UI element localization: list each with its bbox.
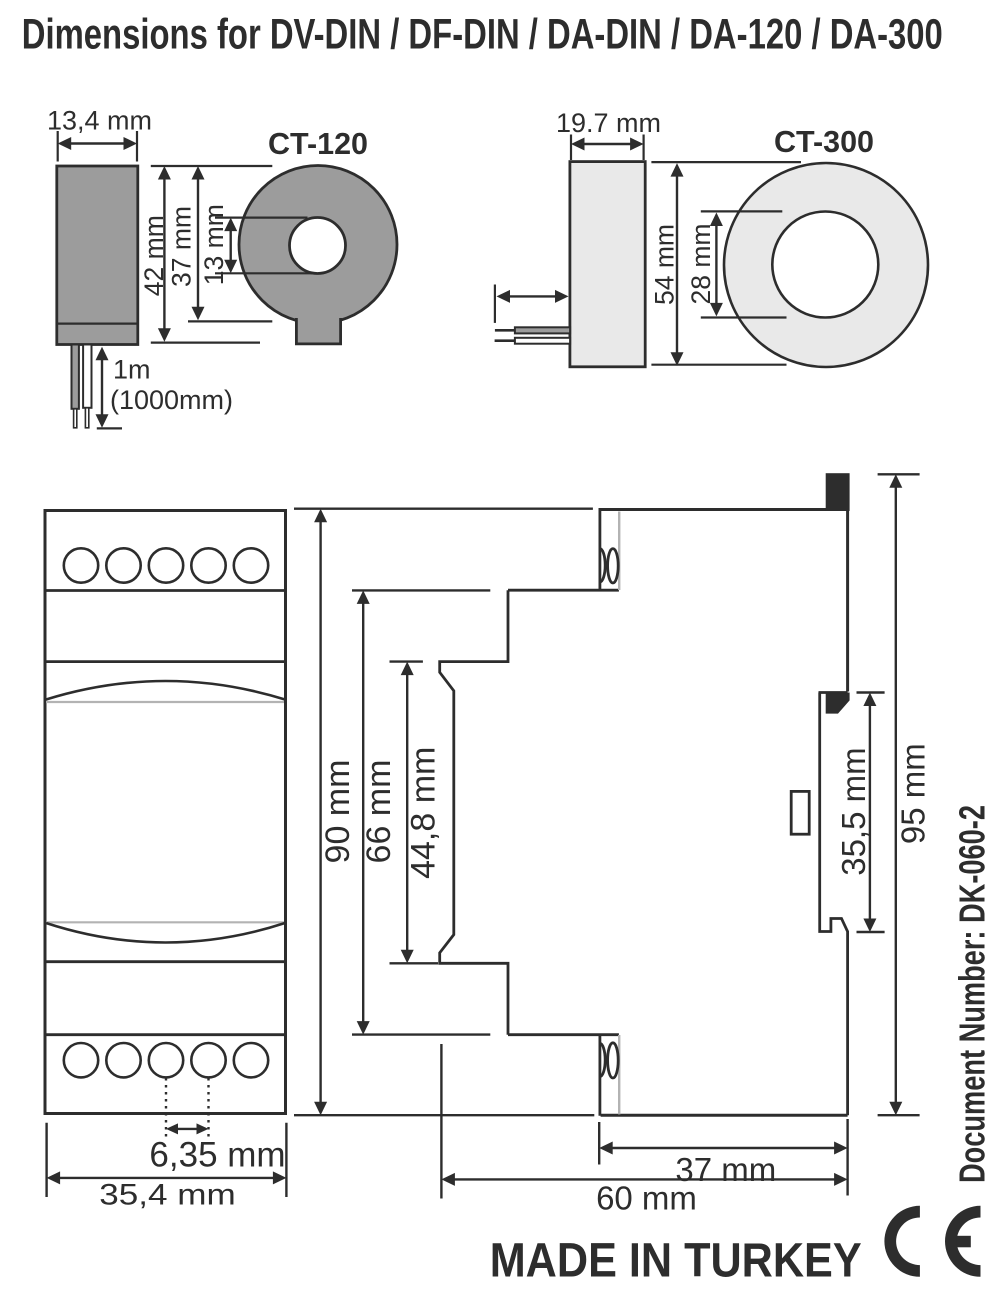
svg-text:CT-300: CT-300: [774, 125, 874, 159]
svg-text:Dimensions for DV-DIN / DF-DIN: Dimensions for DV-DIN / DF-DIN / DA-DIN …: [22, 11, 943, 59]
svg-text:35,4 mm: 35,4 mm: [99, 1177, 235, 1211]
svg-text:28 mm: 28 mm: [686, 224, 716, 305]
svg-text:54 mm: 54 mm: [650, 224, 680, 305]
svg-text:19.7 mm: 19.7 mm: [556, 108, 661, 138]
svg-text:(1000mm): (1000mm): [110, 385, 233, 415]
svg-text:MADE IN TURKEY: MADE IN TURKEY: [490, 1234, 862, 1287]
svg-text:Document Number: DK-060-2: Document Number: DK-060-2: [952, 805, 993, 1183]
svg-text:90 mm: 90 mm: [319, 760, 357, 864]
svg-text:60 mm: 60 mm: [596, 1180, 697, 1217]
svg-text:42 mm: 42 mm: [139, 215, 169, 296]
svg-text:35,5 mm: 35,5 mm: [835, 747, 872, 875]
svg-text:66 mm: 66 mm: [360, 760, 398, 864]
svg-text:6,35 mm: 6,35 mm: [149, 1136, 285, 1175]
svg-text:13 mm: 13 mm: [199, 204, 229, 285]
svg-text:95 mm: 95 mm: [894, 743, 931, 844]
svg-text:44,8 mm: 44,8 mm: [404, 747, 442, 879]
svg-text:1m: 1m: [113, 355, 151, 385]
svg-text:13,4 mm: 13,4 mm: [47, 106, 152, 136]
svg-text:CT-120: CT-120: [268, 127, 368, 161]
svg-text:37 mm: 37 mm: [167, 206, 197, 287]
